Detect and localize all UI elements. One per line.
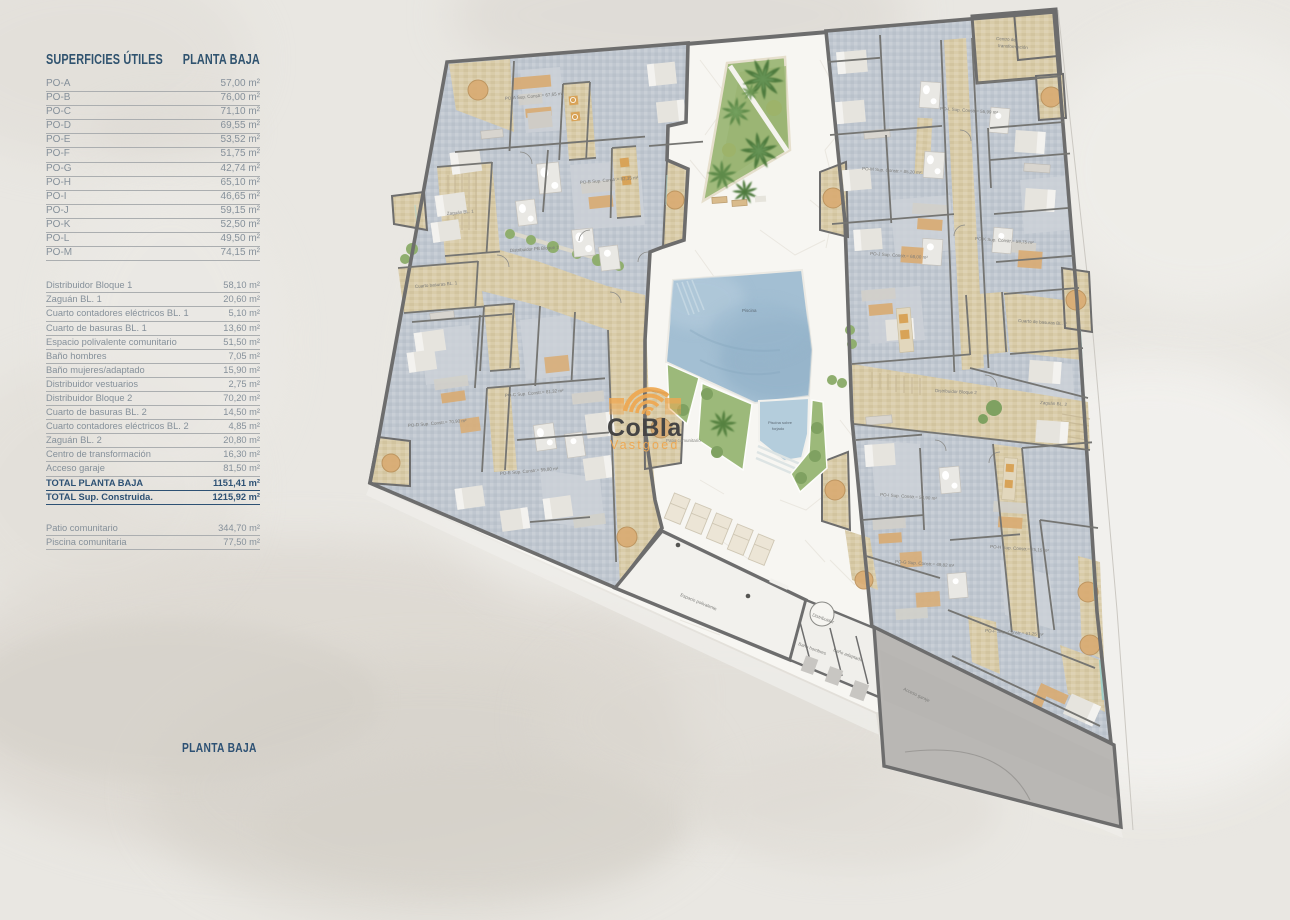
svg-text:Piscina sobre: Piscina sobre bbox=[768, 420, 793, 425]
svg-text:forjado: forjado bbox=[772, 426, 785, 431]
svg-text:Patio comunitario: Patio comunitario bbox=[666, 438, 701, 443]
svg-text:Piscina: Piscina bbox=[742, 308, 757, 313]
